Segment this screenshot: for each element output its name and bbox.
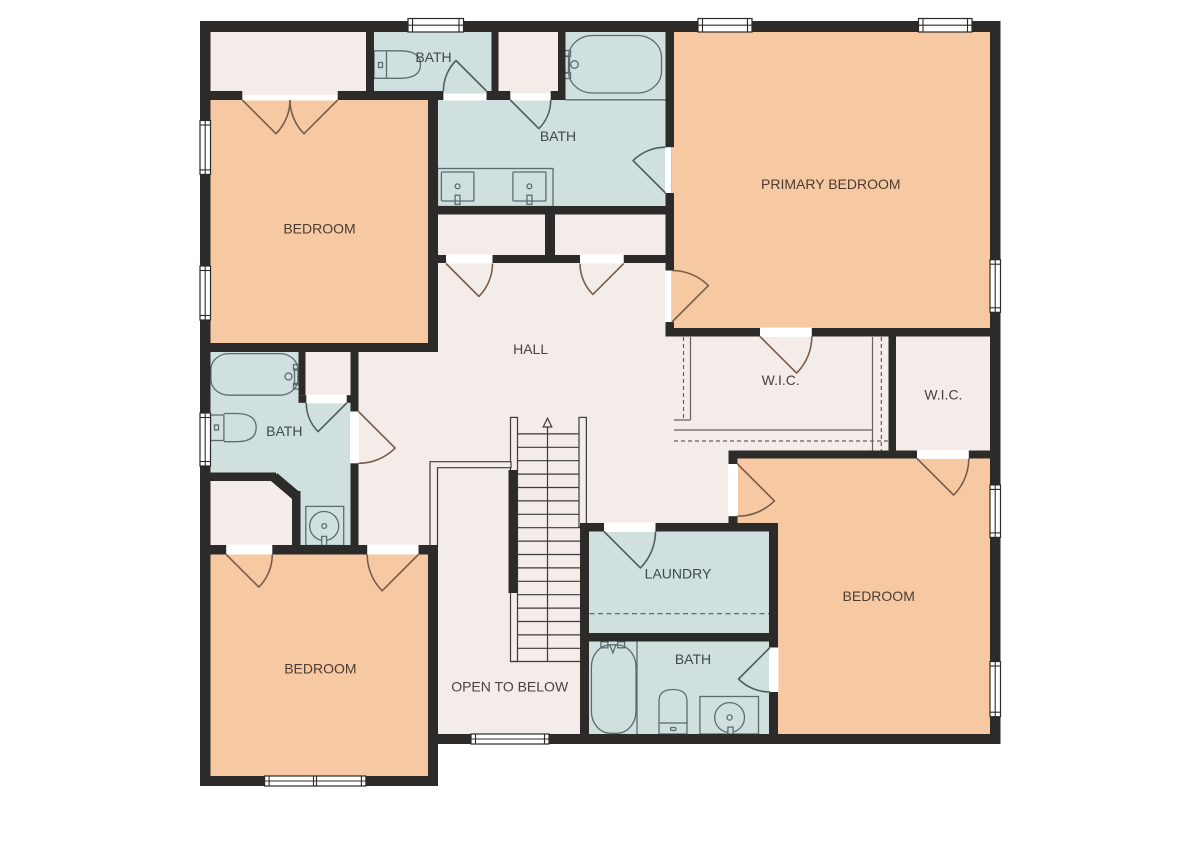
svg-text:W.I.C.: W.I.C. [762, 372, 800, 388]
svg-text:BEDROOM: BEDROOM [283, 221, 355, 237]
svg-text:W.I.C.: W.I.C. [924, 387, 962, 403]
svg-text:BEDROOM: BEDROOM [843, 588, 915, 604]
svg-text:OPEN TO BELOW: OPEN TO BELOW [451, 679, 569, 695]
svg-text:BATH: BATH [540, 128, 576, 144]
svg-text:BATH: BATH [266, 423, 302, 439]
svg-text:BEDROOM: BEDROOM [284, 661, 356, 677]
svg-text:HALL: HALL [513, 341, 548, 357]
svg-text:PRIMARY BEDROOM: PRIMARY BEDROOM [761, 176, 901, 192]
svg-text:LAUNDRY: LAUNDRY [645, 566, 712, 582]
svg-text:BATH: BATH [675, 651, 711, 667]
svg-text:BATH: BATH [415, 49, 451, 65]
